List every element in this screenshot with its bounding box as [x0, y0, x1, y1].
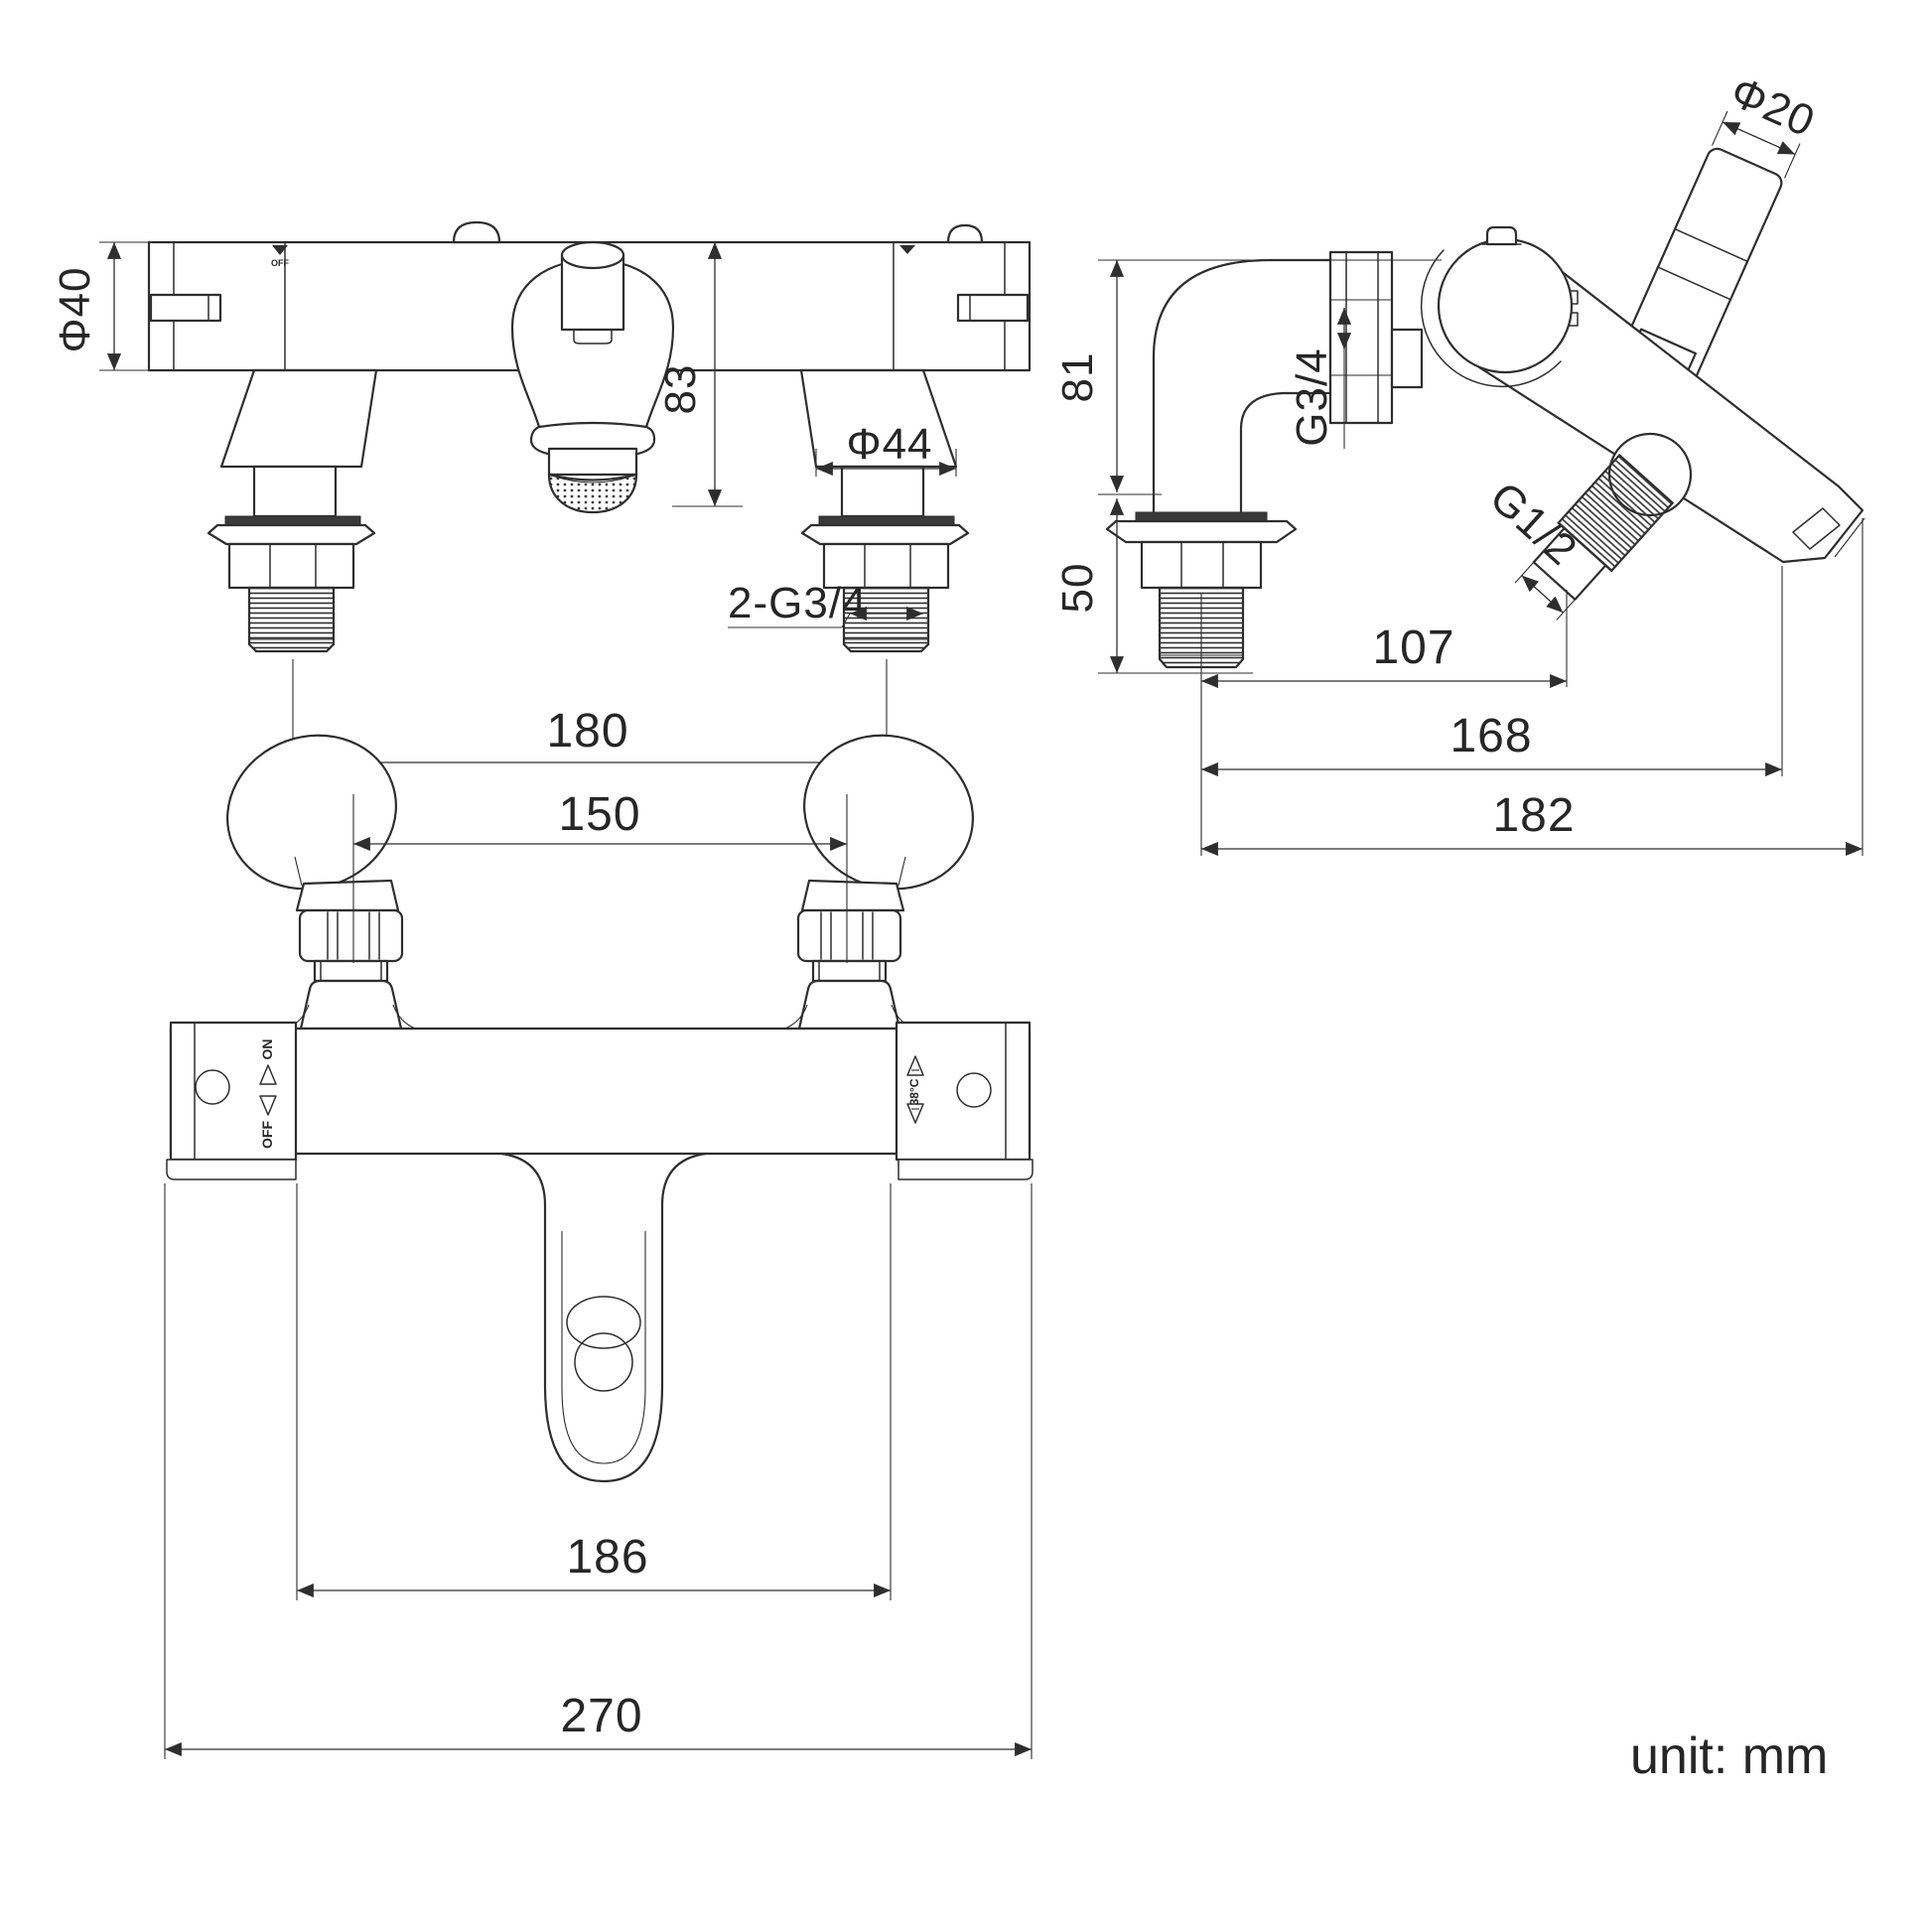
plan-186-text: 186 [566, 1531, 648, 1584]
technical-drawing-page: OFF [0, 0, 1932, 1932]
front-left-lever [151, 295, 220, 321]
unit-label: unit: mm [1630, 1727, 1828, 1785]
front-dim-180: 180 [293, 659, 887, 772]
front-shower-outlet [512, 242, 673, 512]
plan-right-plate [898, 1160, 1033, 1179]
plan-left-cap [171, 1023, 296, 1160]
front-off-text: OFF [271, 258, 289, 268]
plan-left-plate [167, 1160, 296, 1179]
side-inlet-stub [1392, 330, 1422, 387]
side-g34-text: G3/4 [1288, 347, 1336, 446]
front-left-screw-dome [454, 222, 499, 242]
side-50-text: 50 [1053, 563, 1102, 614]
plan-left-standpipe [281, 881, 421, 1031]
plan-off-text: OFF [259, 1121, 275, 1149]
mixer-tap-dimension-drawing: OFF [0, 0, 1932, 1932]
plan-dim-150: 150 [353, 788, 847, 963]
side-dim-182: 182 [1201, 518, 1863, 856]
side-107-text: 107 [1372, 621, 1454, 674]
plan-view: 150 ON OFF 38°C [165, 712, 1033, 1759]
plan-38c-text: 38°C [907, 1078, 921, 1105]
plan-right-standpipe [779, 881, 919, 1031]
front-dia40-text: Φ40 [51, 266, 99, 352]
side-dia20-text: Φ20 [1724, 68, 1822, 147]
side-dim-107: 107 [1201, 621, 1567, 681]
side-182-text: 182 [1492, 789, 1575, 842]
plan-dim-270: 270 [165, 1183, 1032, 1759]
side-dim-168: 168 [1201, 566, 1782, 776]
plan-270-text: 270 [560, 1690, 642, 1742]
front-83-text: 83 [656, 364, 705, 415]
front-right-lever [958, 295, 1028, 321]
side-81-text: 81 [1053, 352, 1102, 403]
front-dim-dia40: Φ40 [51, 242, 161, 370]
side-inlet-nut [1330, 252, 1392, 423]
plan-dim-186: 186 [297, 1183, 891, 1600]
side-168-text: 168 [1449, 710, 1532, 762]
plan-spout-dome [567, 1297, 640, 1348]
front-view: OFF [51, 222, 1030, 772]
front-left-thread-tail [249, 588, 334, 651]
front-180-text: 180 [546, 705, 628, 758]
front-left-inlet [208, 370, 376, 651]
side-knob [1439, 239, 1572, 372]
side-view: Φ20 G1/2 G3/4 [1053, 68, 1864, 856]
plan-150-text: 150 [558, 788, 640, 841]
plan-on-text: ON [259, 1039, 275, 1060]
front-dia44-text: Φ44 [846, 420, 932, 469]
front-aerator-face [549, 475, 636, 512]
plan-spout [501, 1154, 706, 1481]
front-right-screw-dome [948, 225, 982, 242]
side-knob-screw [1487, 227, 1516, 244]
